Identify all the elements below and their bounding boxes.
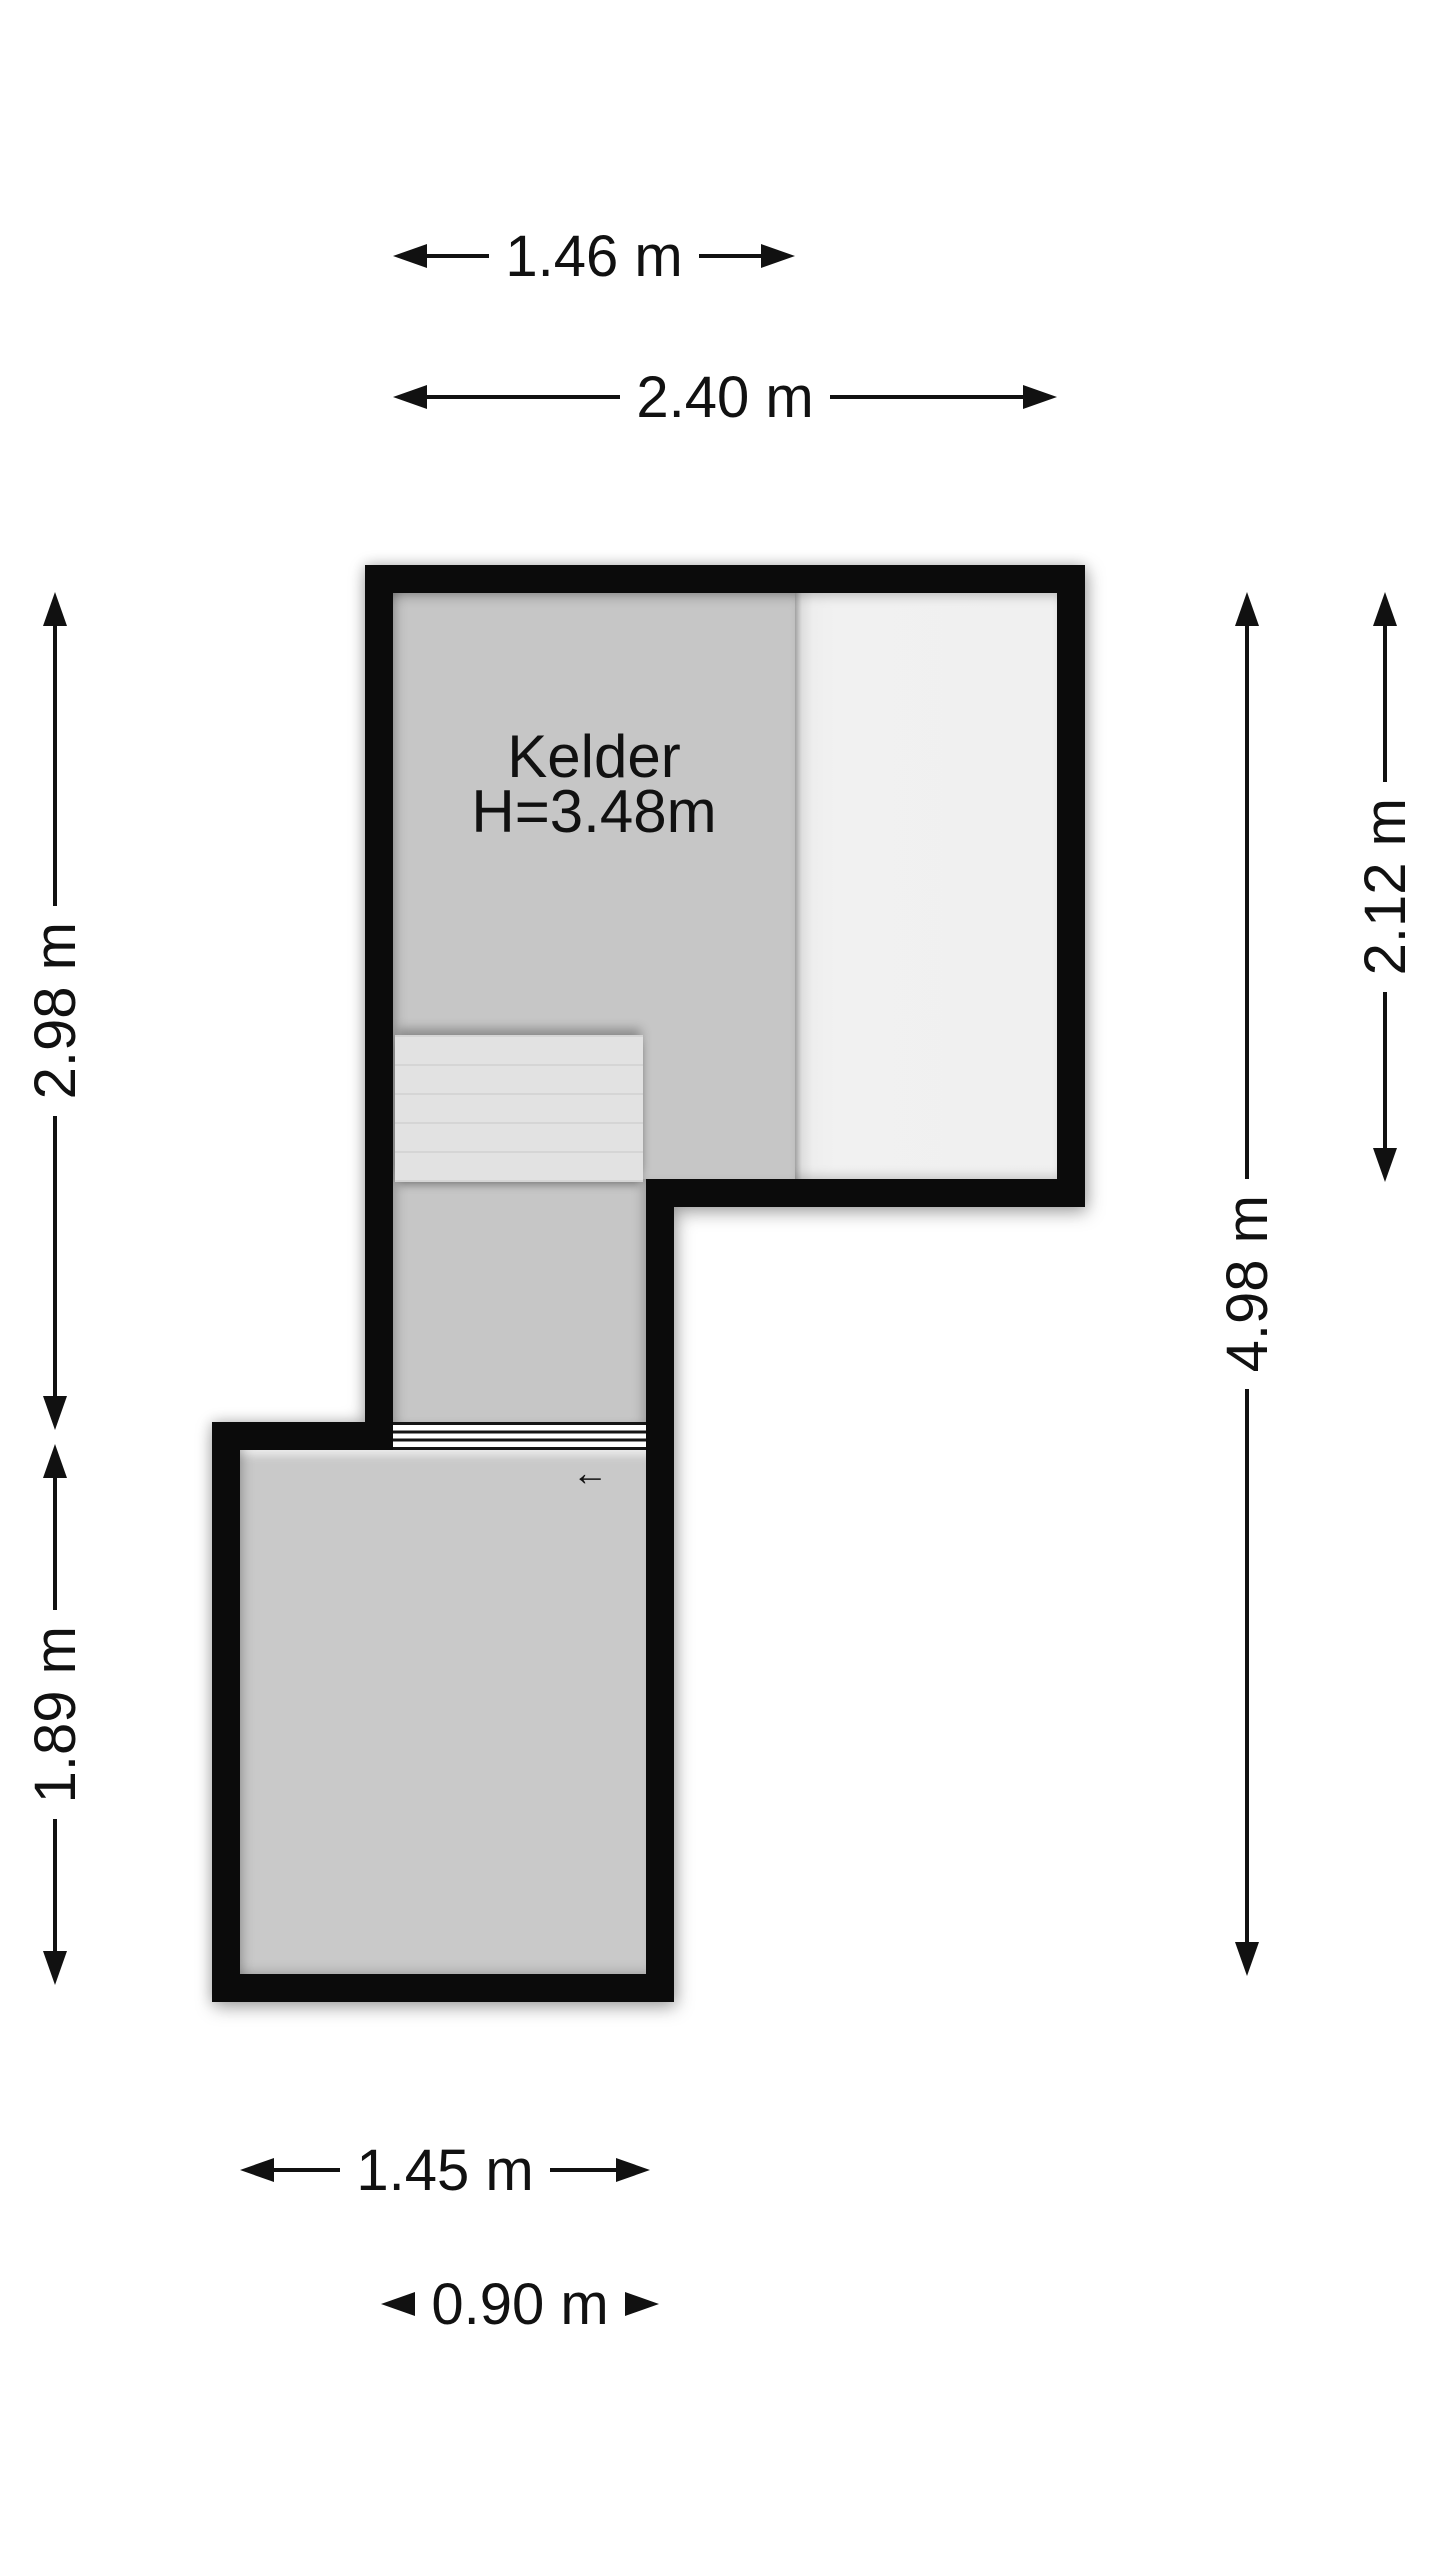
dimension-value-label: 1.89 m bbox=[22, 1610, 89, 1819]
arrowhead-up-icon bbox=[1235, 592, 1259, 626]
wall-right-lower bbox=[646, 1179, 674, 2002]
dimension-line bbox=[1245, 626, 1249, 1179]
corridor-floor bbox=[393, 1179, 646, 1422]
arrowhead-right-icon bbox=[625, 2292, 659, 2316]
lower-room-floor bbox=[240, 1450, 646, 1974]
floor-plan: Kelder H=3.48m ← bbox=[212, 565, 1085, 2002]
dimension-line bbox=[699, 254, 761, 258]
ceiling-height-label: H=3.48m bbox=[393, 784, 795, 839]
arrowhead-up-icon bbox=[43, 592, 67, 626]
dimension-top-kelder-width: 1.46 m bbox=[393, 226, 795, 286]
dimension-right-total-height: 4.98 m bbox=[1217, 592, 1277, 1976]
dimension-value-label: 4.98 m bbox=[1214, 1179, 1281, 1388]
dimension-line bbox=[53, 1478, 57, 1610]
side-area-floor bbox=[795, 593, 1057, 1179]
dimension-value-label: 0.90 m bbox=[415, 2271, 624, 2338]
dimension-left-upper-height: 2.98 m bbox=[25, 592, 85, 1430]
dimension-left-lower-height: 1.89 m bbox=[25, 1444, 85, 1985]
arrowhead-up-icon bbox=[43, 1444, 67, 1478]
arrowhead-left-icon bbox=[393, 385, 427, 409]
dimension-value-label: 2.40 m bbox=[620, 364, 829, 431]
dimension-line bbox=[53, 626, 57, 906]
arrowhead-right-icon bbox=[616, 2158, 650, 2182]
dimension-value-label: 2.12 m bbox=[1352, 782, 1419, 991]
dimension-line bbox=[550, 2168, 616, 2172]
arrowhead-left-icon bbox=[393, 244, 427, 268]
wall-top bbox=[365, 565, 1085, 593]
dimension-line bbox=[427, 395, 620, 399]
arrowhead-left-icon bbox=[240, 2158, 274, 2182]
dimension-line bbox=[1383, 626, 1387, 782]
stair-direction-arrow-icon: ← bbox=[550, 1451, 630, 1495]
arrowhead-left-icon bbox=[381, 2292, 415, 2316]
staircase bbox=[395, 1035, 643, 1182]
dimension-line bbox=[830, 395, 1023, 399]
arrowhead-up-icon bbox=[1373, 592, 1397, 626]
arrowhead-right-icon bbox=[1023, 385, 1057, 409]
dimension-line bbox=[427, 254, 489, 258]
dimension-value-label: 1.46 m bbox=[489, 223, 698, 290]
wall-left-lower-room bbox=[212, 1422, 240, 2002]
dimension-right-upper-height: 2.12 m bbox=[1355, 592, 1415, 1182]
room-name-label: Kelder bbox=[393, 729, 795, 784]
stair-treads bbox=[393, 1422, 646, 1450]
dimension-bottom-corridor-width: 0.90 m bbox=[393, 2274, 647, 2334]
dimension-line bbox=[53, 1116, 57, 1396]
floor-plan-page: Kelder H=3.48m ← 1.46 m 2.40 m 2.98 m 1.… bbox=[0, 0, 1440, 2560]
wall-bottom-upper bbox=[646, 1179, 1085, 1207]
wall-bottom-lower-room bbox=[212, 1974, 674, 2002]
dimension-line bbox=[274, 2168, 340, 2172]
arrowhead-down-icon bbox=[1373, 1148, 1397, 1182]
wall-left-upper bbox=[365, 565, 393, 1450]
dimension-line bbox=[53, 1819, 57, 1951]
dimension-line bbox=[1383, 992, 1387, 1148]
dimension-value-label: 1.45 m bbox=[340, 2137, 549, 2204]
dimension-top-total-width: 2.40 m bbox=[393, 367, 1057, 427]
arrowhead-down-icon bbox=[43, 1396, 67, 1430]
arrowhead-down-icon bbox=[43, 1951, 67, 1985]
arrowhead-down-icon bbox=[1235, 1942, 1259, 1976]
room-label: Kelder H=3.48m bbox=[393, 729, 795, 839]
dimension-line bbox=[1245, 1389, 1249, 1942]
wall-right-upper bbox=[1057, 565, 1085, 1207]
dimension-bottom-lower-width: 1.45 m bbox=[240, 2140, 650, 2200]
arrowhead-right-icon bbox=[761, 244, 795, 268]
dimension-value-label: 2.98 m bbox=[22, 906, 89, 1115]
